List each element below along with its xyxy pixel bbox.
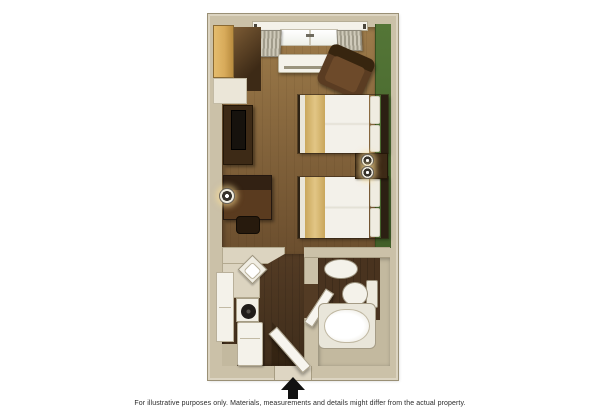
burner-icon — [241, 304, 256, 319]
floorplan — [208, 14, 398, 380]
bed-pillows — [369, 177, 381, 238]
bed-footboard — [298, 177, 305, 238]
bed-footboard — [298, 95, 305, 153]
refrigerator — [237, 322, 263, 366]
tall-cabinet — [216, 272, 234, 342]
bed-duvet — [325, 177, 369, 238]
bed-runner — [305, 177, 325, 238]
bed-duvet — [325, 95, 369, 153]
bed-headboard — [381, 177, 388, 238]
tv-dresser — [223, 105, 253, 165]
window-glass — [280, 29, 338, 46]
bathtub-basin — [324, 309, 370, 343]
arrow-head — [281, 377, 305, 390]
pillow — [370, 96, 380, 124]
floorplan-image: For illustrative purposes only. Material… — [0, 0, 600, 420]
bathroom-sink — [324, 259, 358, 279]
bathroom-left-wall-upper — [304, 258, 318, 284]
flat-tv — [231, 110, 246, 150]
closet-door — [213, 25, 234, 78]
disclaimer-text: For illustrative purposes only. Material… — [0, 399, 600, 409]
desk-lamp-icon — [219, 188, 235, 204]
desk-chair — [236, 216, 260, 234]
bed-runner — [305, 95, 325, 153]
shelf-counter — [213, 78, 247, 104]
bed-headboard — [381, 95, 388, 153]
double-bed-1 — [298, 95, 388, 153]
entry-arrow-icon — [281, 377, 305, 400]
bed-pillows — [369, 95, 381, 153]
cooktop-stove — [236, 298, 259, 322]
bathtub — [318, 303, 376, 349]
pillow — [370, 208, 380, 237]
bathroom-top-wall — [304, 247, 390, 258]
sink-bowl — [243, 262, 261, 280]
nightstand-lamp-icon — [361, 166, 374, 179]
arrow-stem — [288, 390, 298, 399]
entry-tile — [222, 344, 237, 366]
double-bed-2 — [298, 177, 388, 238]
pillow — [370, 178, 380, 207]
pillow — [370, 125, 380, 153]
